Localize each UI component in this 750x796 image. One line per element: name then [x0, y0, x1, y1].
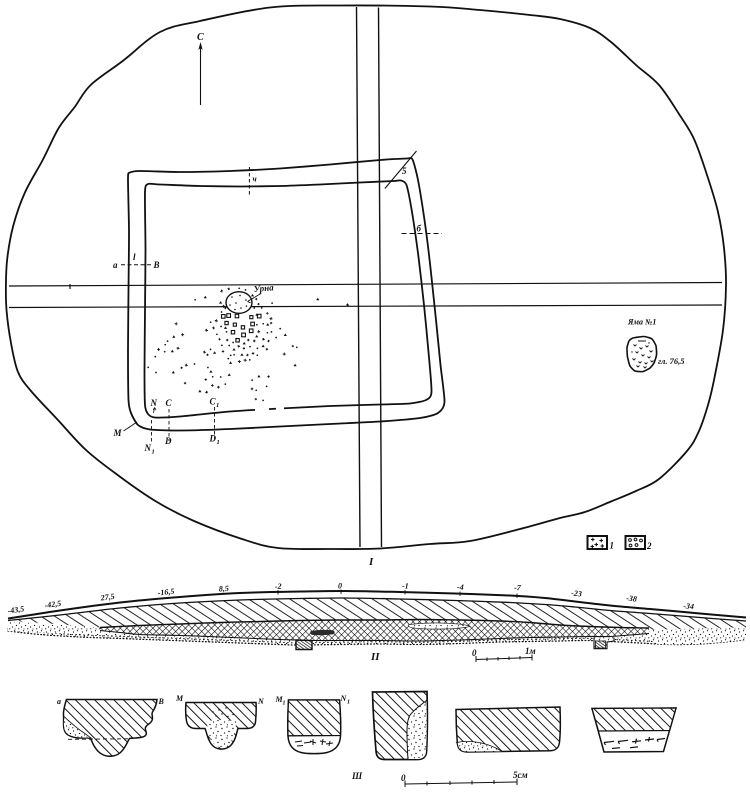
svg-text:гл. 76,5: гл. 76,5 [658, 356, 685, 366]
svg-text:C: C [166, 398, 173, 408]
svg-text:5: 5 [402, 166, 407, 176]
svg-text:0: 0 [338, 582, 342, 591]
svg-text:2: 2 [646, 541, 652, 551]
svg-text:8,5: 8,5 [219, 584, 230, 594]
svg-text:D: D [209, 434, 217, 444]
svg-text:D: D [164, 436, 172, 446]
svg-text:-34: -34 [683, 601, 695, 611]
svg-text:1: 1 [216, 402, 219, 409]
svg-text:-4: -4 [457, 583, 464, 592]
svg-text:5см: 5см [513, 770, 528, 780]
svg-text:1: 1 [217, 439, 220, 446]
svg-text:27,5: 27,5 [99, 592, 115, 603]
svg-text:-38: -38 [626, 594, 638, 604]
svg-text:1м: 1м [525, 646, 536, 656]
svg-text:-2: -2 [275, 582, 282, 591]
svg-text:N: N [144, 443, 152, 453]
svg-text:1: 1 [347, 700, 350, 706]
svg-text:-23: -23 [571, 589, 582, 599]
svg-text:1: 1 [283, 701, 286, 707]
svg-text:N: N [150, 398, 158, 408]
svg-text:б: б [417, 224, 422, 234]
svg-text:ч: ч [253, 175, 257, 184]
svg-text:I: I [368, 556, 374, 568]
svg-text:В: В [153, 260, 160, 270]
svg-text:-16,5: -16,5 [157, 587, 175, 598]
svg-text:В: В [158, 697, 165, 706]
svg-text:II: II [370, 651, 380, 663]
svg-text:М: М [113, 428, 123, 438]
svg-text:С: С [197, 32, 204, 43]
svg-text:1: 1 [152, 449, 155, 456]
svg-text:Урна: Урна [253, 282, 274, 294]
svg-text:М: М [175, 694, 184, 703]
svg-text:1: 1 [610, 541, 615, 551]
svg-text:-1: -1 [402, 582, 409, 591]
svg-text:а: а [57, 697, 61, 706]
svg-text:Яма №1: Яма №1 [627, 318, 656, 327]
svg-text:Ш: Ш [351, 771, 363, 781]
svg-text:а: а [113, 260, 118, 270]
